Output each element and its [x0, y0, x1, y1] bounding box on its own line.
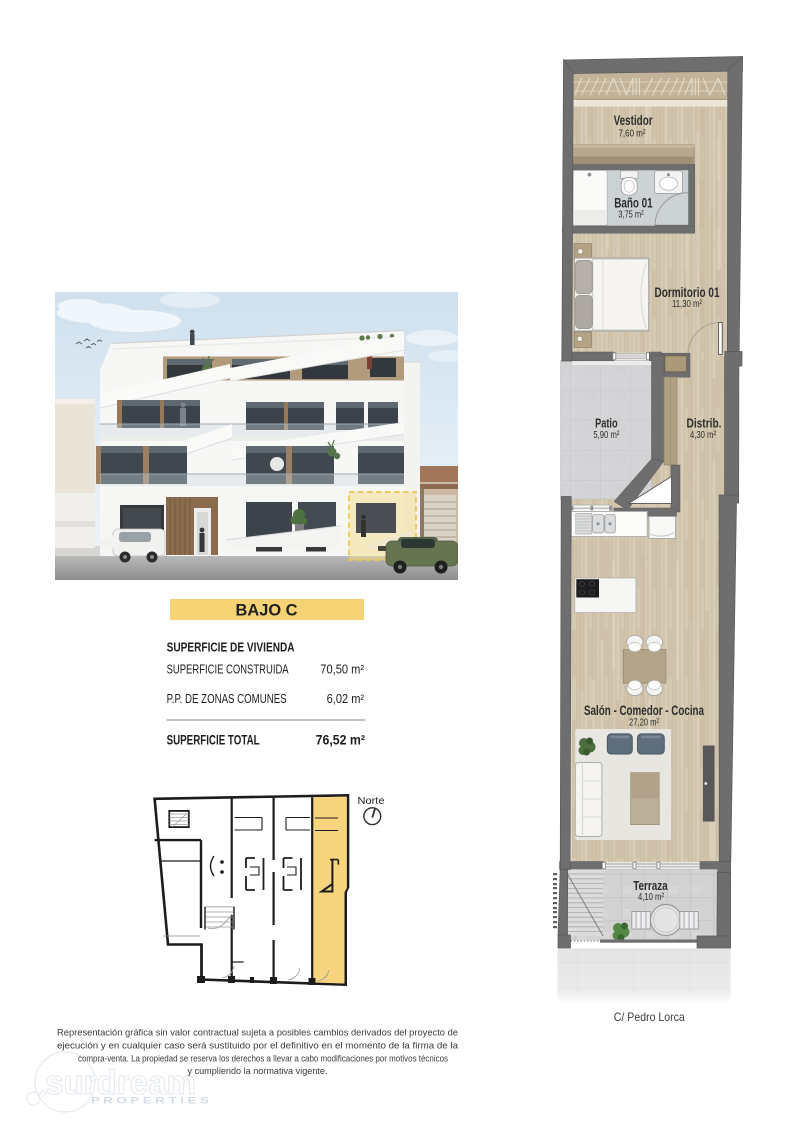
svg-text:SUPERFICIE DE VIVIENDA: SUPERFICIE DE VIVIENDA	[167, 639, 295, 654]
svg-text:ejecución y en cualquier caso: ejecución y en cualquier caso será susti…	[57, 1041, 459, 1051]
svg-text:27,20 m²: 27,20 m²	[629, 717, 659, 729]
svg-text:BAJO C: BAJO C	[235, 600, 297, 619]
svg-text:11,30 m²: 11,30 m²	[672, 298, 702, 310]
svg-text:70,50 m²: 70,50 m²	[320, 661, 364, 676]
svg-text:Representación gráfica sin val: Representación gráfica sin valor contrac…	[57, 1028, 458, 1038]
svg-text:5,90 m²: 5,90 m²	[593, 429, 619, 441]
svg-text:P R O P E R T I E S: P R O P E R T I E S	[91, 1096, 209, 1107]
svg-text:Norte: Norte	[358, 795, 385, 807]
svg-text:SUPERFICIE CONSTRUIDA: SUPERFICIE CONSTRUIDA	[167, 661, 289, 676]
svg-text:7,60 m²: 7,60 m²	[619, 128, 646, 140]
svg-text:3,75 m²: 3,75 m²	[618, 209, 644, 221]
svg-text:4,10 m²: 4,10 m²	[638, 891, 664, 903]
svg-text:SUPERFICIE TOTAL: SUPERFICIE TOTAL	[167, 733, 260, 748]
svg-text:76,52 m²: 76,52 m²	[316, 733, 366, 748]
svg-text:P.P. DE ZONAS COMUNES: P.P. DE ZONAS COMUNES	[167, 691, 287, 706]
svg-text:4,30 m²: 4,30 m²	[690, 429, 716, 441]
svg-text:Vestidor: Vestidor	[614, 113, 654, 128]
svg-text:6,02 m²: 6,02 m²	[327, 691, 365, 706]
svg-text:compra-venta. La propiedad se: compra-venta. La propiedad se reserva lo…	[78, 1054, 448, 1064]
svg-text:y cumpliendo la normativa vige: y cumpliendo la normativa vigente.	[188, 1066, 328, 1076]
